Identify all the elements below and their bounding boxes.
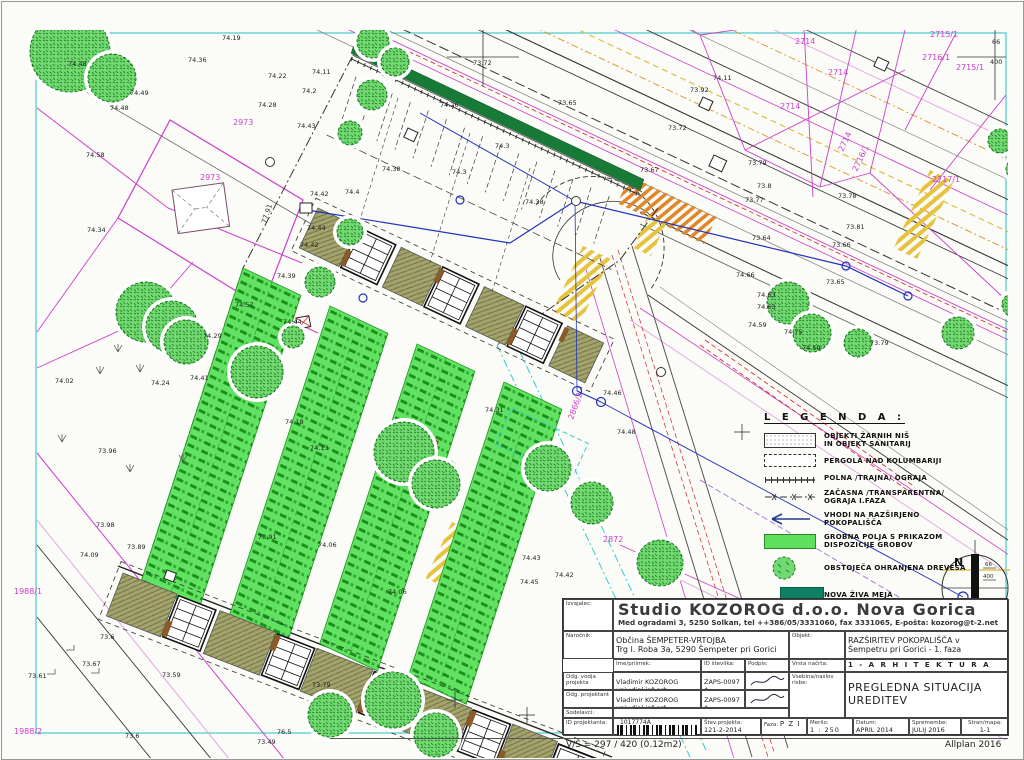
- svg-text:74.24: 74.24: [151, 379, 170, 387]
- svg-text:400: 400: [990, 58, 1002, 66]
- tree-swatch: [764, 555, 816, 581]
- svg-text:73.49: 73.49: [257, 738, 276, 746]
- drawing-title: PREGLEDNA SITUACIJA UREDITEV: [845, 672, 1009, 718]
- svg-text:73.72: 73.72: [473, 59, 492, 67]
- studio-name: Studio KOZOROG d.o.o. Nova Gorica: [618, 601, 1004, 618]
- pergola-swatch: [764, 454, 816, 467]
- svg-text:73.81: 73.81: [846, 223, 865, 231]
- svg-text:2714: 2714: [780, 102, 800, 111]
- svg-text:73.65: 73.65: [558, 99, 577, 107]
- svg-text:74.42: 74.42: [555, 571, 574, 579]
- svg-text:73.96: 73.96: [98, 447, 117, 455]
- studio-header: Studio KOZOROG d.o.o. Nova Gorica Med og…: [613, 599, 1009, 631]
- svg-text:2714: 2714: [795, 37, 815, 46]
- svg-text:2714: 2714: [828, 68, 848, 77]
- svg-text:76.5: 76.5: [277, 728, 291, 736]
- svg-text:2717/1: 2717/1: [932, 175, 960, 184]
- svg-text:74.06: 74.06: [388, 588, 407, 596]
- svg-text:74.31: 74.31: [485, 406, 504, 414]
- svg-text:2716/1: 2716/1: [922, 53, 950, 62]
- svg-text:74.36: 74.36: [188, 56, 207, 64]
- svg-text:66: 66: [992, 38, 1000, 46]
- vrsta-nacrta-value: 1 - A R H I T E K T U R A: [845, 659, 1009, 672]
- svg-text:74.59: 74.59: [748, 321, 767, 329]
- svg-text:74.3: 74.3: [452, 168, 466, 176]
- svg-text:73.79: 73.79: [748, 159, 767, 167]
- objekt-value-cell: RAZŠIRITEV POKOPALIŠČA v Šempetru pri Go…: [845, 631, 1009, 659]
- title-block: Izvajalec: Studio KOZOROG d.o.o. Nova Go…: [562, 598, 1008, 735]
- svg-text:74.29: 74.29: [203, 332, 222, 340]
- svg-text:2716/1: 2716/1: [851, 144, 871, 173]
- svg-text:74.19: 74.19: [222, 34, 241, 42]
- footer-line: [330, 738, 1008, 739]
- svg-text:73.79: 73.79: [870, 339, 889, 347]
- barcode: [617, 725, 697, 735]
- svg-text:2715/1: 2715/1: [956, 63, 984, 72]
- svg-text:74.48: 74.48: [110, 104, 129, 112]
- svg-text:73.61: 73.61: [28, 672, 47, 680]
- svg-text:73.79: 73.79: [312, 681, 331, 689]
- svg-text:2973: 2973: [200, 173, 220, 182]
- legend-item-trees: OBSTOJEČA OHRANJENA DREVESA: [764, 555, 1012, 581]
- svg-text:73.98: 73.98: [96, 521, 115, 529]
- svg-text:74.45: 74.45: [520, 578, 539, 586]
- svg-text:74.41: 74.41: [190, 374, 209, 382]
- legend-item-urn-objects: OBJEKTI ŽARNIH NIŠIN OBJEKT SANITARIJ: [764, 432, 1012, 448]
- solid-fence-swatch: [764, 473, 816, 483]
- legend-item-entrances: VHODI NA RAZŠIRJENOPOKOPALIŠČA: [764, 511, 1012, 527]
- existing-house: [172, 183, 230, 234]
- svg-text:74.11: 74.11: [312, 68, 331, 76]
- svg-text:77.91: 77.91: [260, 203, 274, 225]
- svg-text:74.42: 74.42: [310, 190, 329, 198]
- svg-text:74.66: 74.66: [736, 271, 755, 279]
- svg-text:74.02: 74.02: [55, 377, 74, 385]
- svg-text:74.46: 74.46: [603, 389, 622, 397]
- svg-text:74.06: 74.06: [318, 541, 337, 549]
- svg-text:73.91: 73.91: [258, 533, 277, 541]
- svg-text:74.39: 74.39: [277, 272, 296, 280]
- svg-text:74.48: 74.48: [143, 24, 162, 32]
- svg-text:74.48: 74.48: [617, 428, 636, 436]
- svg-text:73.72: 73.72: [668, 124, 687, 132]
- svg-text:74.43: 74.43: [297, 122, 316, 130]
- svg-text:73.92: 73.92: [690, 86, 709, 94]
- svg-text:2715/1: 2715/1: [930, 30, 958, 39]
- legend: L E G E N D A : OBJEKTI ŽARNIH NIŠIN OBJ…: [764, 414, 1012, 608]
- svg-text:73.78: 73.78: [838, 192, 857, 200]
- svg-text:73.6: 73.6: [100, 633, 114, 641]
- signature-vodja: [745, 672, 789, 690]
- barcode-cell: 1017774A: [613, 718, 701, 736]
- svg-text:74.2: 74.2: [302, 87, 316, 95]
- svg-text:1988/2: 1988/2: [14, 727, 42, 736]
- legend-item-pergola: PERGOLA NAD KOLUMBARIJI: [764, 454, 1012, 467]
- svg-text:74.4: 74.4: [345, 188, 359, 196]
- svg-text:2714: 2714: [832, 5, 852, 14]
- plan-sheet: { "sheet": { "footer_left": "V/Š = 297 /…: [0, 0, 1024, 760]
- svg-text:74.3: 74.3: [495, 142, 509, 150]
- legend-item-solid-fence: POLNA /TRAJNA/ OGRAJA: [764, 473, 1012, 483]
- svg-text:74.42: 74.42: [300, 241, 319, 249]
- studio-address: Med ogradami 3, 5250 Solkan, tel ++386/0…: [618, 618, 1004, 627]
- svg-text:73.89: 73.89: [127, 543, 146, 551]
- svg-text:74.11: 74.11: [713, 74, 732, 82]
- svg-text:73.77: 73.77: [745, 196, 764, 204]
- software-credit: Allplan 2016: [945, 740, 1001, 750]
- svg-text:73.6: 73.6: [125, 732, 139, 740]
- legend-title: L E G E N D A :: [764, 414, 905, 424]
- svg-text:2714: 2714: [837, 131, 854, 153]
- svg-text:74.49: 74.49: [130, 89, 149, 97]
- svg-text:2872: 2872: [603, 535, 623, 544]
- svg-text:74.44: 74.44: [307, 224, 326, 232]
- svg-text:74.28: 74.28: [258, 101, 277, 109]
- sheet-size-note: V/Š = 297 / 420 (0.12m2): [566, 740, 682, 750]
- narocnik-value-cell: Občina ŠEMPETER-VRTOJBA Trg I. Roba 3a, …: [613, 631, 789, 659]
- svg-text:73.67: 73.67: [640, 166, 659, 174]
- svg-text:74.26: 74.26: [440, 101, 459, 109]
- svg-text:74.09: 74.09: [80, 551, 99, 559]
- svg-text:74.13: 74.13: [310, 444, 329, 452]
- svg-text:73.67: 73.67: [82, 660, 101, 668]
- svg-text:73.59: 73.59: [162, 671, 181, 679]
- svg-text:73.64: 73.64: [752, 234, 771, 242]
- svg-text:74.43: 74.43: [522, 554, 541, 562]
- svg-text:74.48: 74.48: [68, 60, 87, 68]
- izvajalec-cell: Izvajalec:: [563, 599, 613, 631]
- grave-fields-swatch: [764, 534, 816, 549]
- urn-objects-swatch: [764, 433, 816, 448]
- signature-projektant: [745, 690, 789, 708]
- svg-text:74.57: 74.57: [235, 301, 254, 309]
- svg-text:74.38: 74.38: [382, 165, 401, 173]
- svg-text:74.58: 74.58: [86, 151, 105, 159]
- objekt-label-cell: Objekt:: [789, 631, 845, 659]
- svg-text:1988/1: 1988/1: [14, 587, 42, 596]
- svg-text:2973: 2973: [233, 118, 253, 127]
- svg-text:73.8: 73.8: [757, 182, 771, 190]
- svg-text:74.34: 74.34: [87, 226, 106, 234]
- temp-fence-swatch: [764, 492, 816, 502]
- svg-text:74.22: 74.22: [268, 72, 287, 80]
- svg-text:73.65: 73.65: [826, 278, 845, 286]
- entrance-arrow-icon: [764, 512, 816, 526]
- svg-text:74.44: 74.44: [283, 318, 302, 326]
- svg-text:73.66: 73.66: [832, 241, 851, 249]
- svg-text:74.63: 74.63: [757, 303, 776, 311]
- legend-item-temp-fence: ZAČASNA /TRANSPARENTNA/OGRAJA I.FAZA: [764, 489, 1012, 505]
- grass-layer: [58, 344, 187, 472]
- svg-text:74.59: 74.59: [802, 344, 821, 352]
- narocnik-label-cell: Naročnik:: [563, 631, 613, 659]
- legend-item-grave-fields: GROBNA POLJA S PRIKAZOMDISPOZICIJE GROBO…: [764, 533, 1012, 549]
- svg-text:74.75: 74.75: [784, 328, 803, 336]
- svg-text:74.63: 74.63: [757, 291, 776, 299]
- svg-text:74.18: 74.18: [285, 418, 304, 426]
- svg-text:74.38: 74.38: [525, 198, 544, 206]
- svg-text:2866/2: 2866/2: [566, 391, 584, 421]
